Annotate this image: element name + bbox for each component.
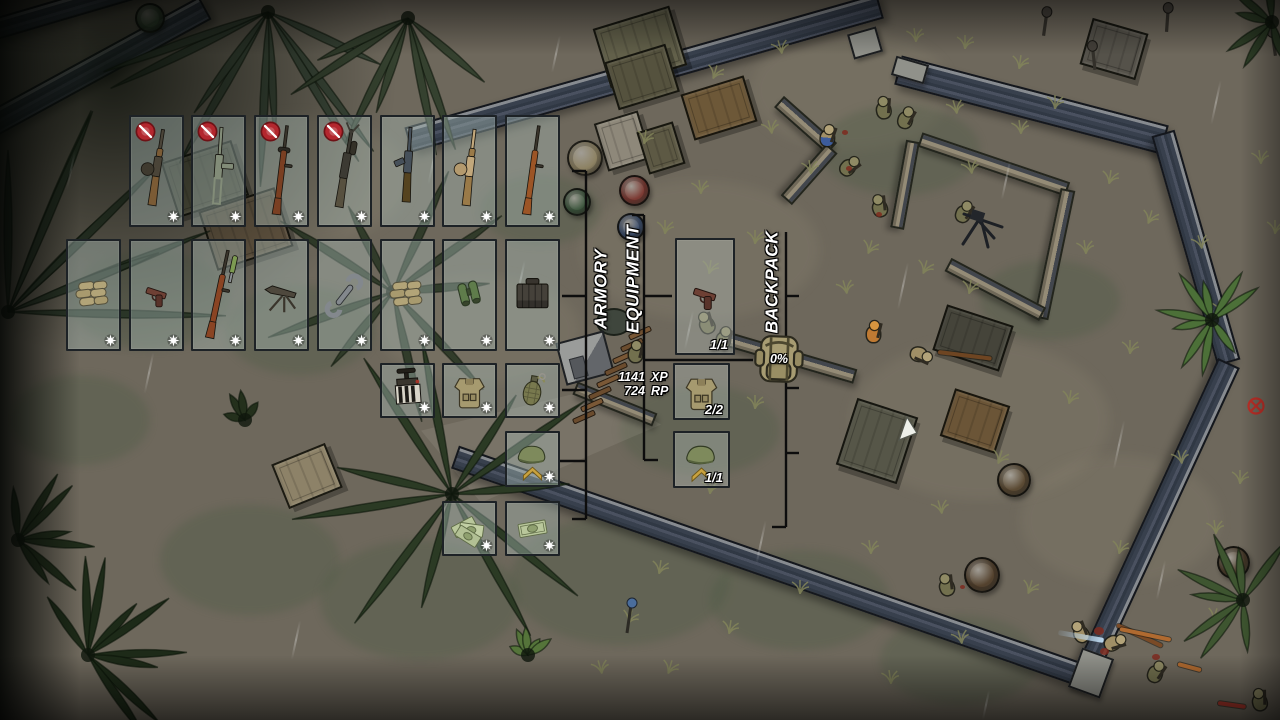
- equipment-label: EQUIPMENT: [623, 225, 644, 334]
- armory-card-field-cap-rank[interactable]: [505, 431, 560, 487]
- armory-card-bolt-rifle[interactable]: [505, 115, 560, 227]
- rifle-with-tool-icon: [193, 241, 244, 349]
- armory-card-money-pile[interactable]: [442, 501, 497, 556]
- armory-card-money-bill[interactable]: [505, 501, 560, 556]
- armory-card-assault-rifle[interactable]: [380, 115, 435, 227]
- slot-count: 1/1: [710, 337, 728, 352]
- backpack-fill-percent: 0%: [751, 352, 807, 366]
- bolt-rifle-icon: [507, 117, 558, 225]
- slot-count: 1/1: [705, 470, 723, 485]
- sandbags-icon: [382, 241, 433, 349]
- equipment-slot-vest[interactable]: 2/2: [673, 363, 730, 420]
- armory-card-sandbags[interactable]: [66, 239, 121, 351]
- deployable-mg-icon: [256, 241, 307, 349]
- ammo-crate-icon: [507, 241, 558, 349]
- armory-label: ARMORY: [591, 249, 612, 329]
- equipment-slot-pistol[interactable]: 1/1: [675, 238, 735, 355]
- armory-card-vest[interactable]: [442, 363, 497, 418]
- armory-card-sandbags[interactable]: [380, 239, 435, 351]
- armory-card-pistol[interactable]: [129, 239, 184, 351]
- mouse-cursor-icon: [896, 414, 922, 444]
- rp-label: RP: [651, 385, 673, 399]
- sandbags-icon: [68, 241, 119, 349]
- backpack-label: BACKPACK: [762, 231, 783, 334]
- armory-card-binoculars[interactable]: [442, 239, 497, 351]
- game-screen: ARMORY EQUIPMENT BACKPACK 1141XP 724RP 1…: [0, 0, 1280, 720]
- xp-value: 1141: [601, 371, 645, 385]
- armory-card-scoped-rifle[interactable]: [254, 115, 309, 227]
- wrench-icon: [319, 241, 370, 349]
- rp-value: 724: [601, 385, 645, 399]
- assault-rifle-icon: [382, 117, 433, 225]
- ui-bracket-lines: [0, 0, 1280, 720]
- armory-card-light-machinegun[interactable]: [317, 115, 372, 227]
- equipment-slot-field-cap[interactable]: 1/1: [673, 431, 730, 488]
- armory-card-grenade[interactable]: [505, 363, 560, 418]
- xp-label: XP: [651, 371, 673, 385]
- armory-card-deployable-mg[interactable]: [254, 239, 309, 351]
- binoculars-icon: [444, 241, 495, 349]
- armory-card-tommy-gun[interactable]: [442, 115, 497, 227]
- armory-card-rifle-with-tool[interactable]: [191, 239, 246, 351]
- armory-card-detonator[interactable]: [380, 363, 435, 418]
- armory-card-thompson-smg[interactable]: [129, 115, 184, 227]
- armory-card-ammo-crate[interactable]: [505, 239, 560, 351]
- tommy-gun-icon: [444, 117, 495, 225]
- player-stats: 1141XP 724RP: [601, 371, 673, 398]
- pistol-icon: [131, 241, 182, 349]
- armory-card-sten-smg[interactable]: [191, 115, 246, 227]
- slot-count: 2/2: [705, 402, 723, 417]
- armory-card-wrench[interactable]: [317, 239, 372, 351]
